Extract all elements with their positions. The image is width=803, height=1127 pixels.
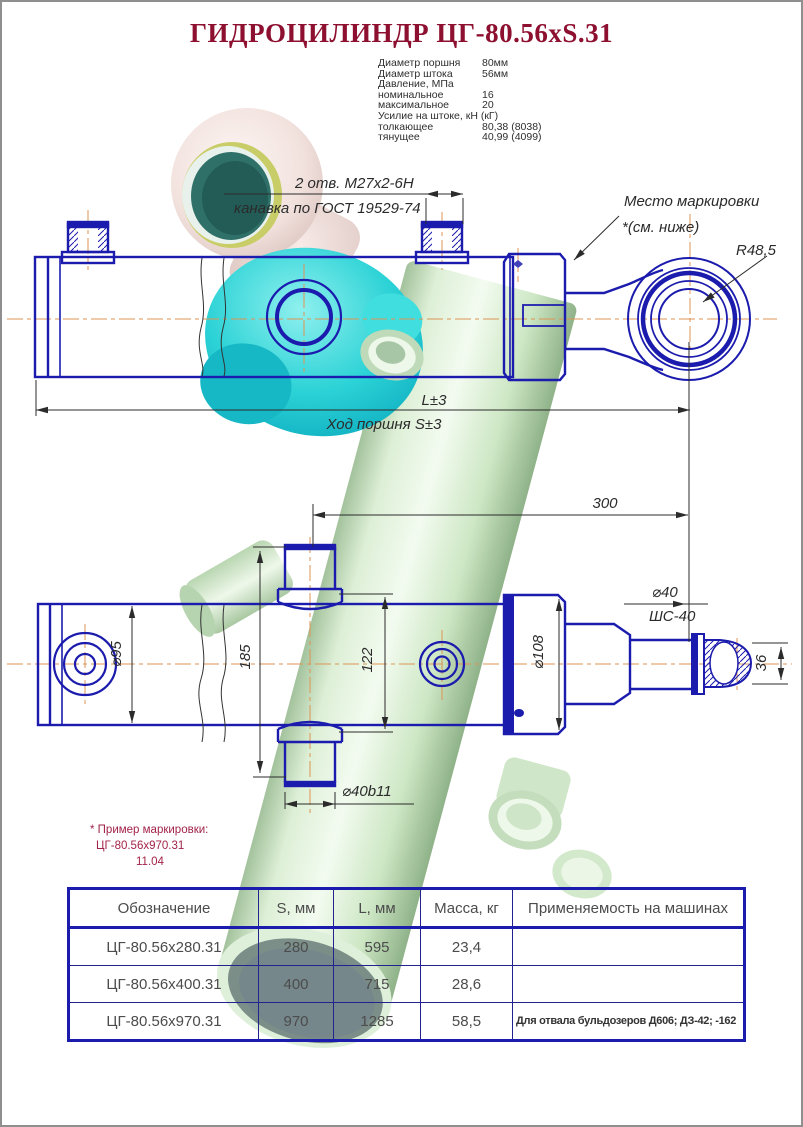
render-port-bottom1 [482, 754, 576, 857]
col-s-mm: S, мм [259, 889, 334, 928]
cell-application: Для отвала бульдозеров Д606; ДЗ-42; -162 [513, 1003, 745, 1041]
label-see-below: *(см. ниже) [622, 219, 699, 236]
label-300: 300 [592, 495, 618, 512]
marking-note-line3: 11.04 [136, 854, 208, 870]
marking-note-line2: ЦГ-80.56x970.31 [96, 838, 208, 854]
drawing-page: 2 отв. М27х2-6Н канавка по ГОСТ 19529-74… [0, 0, 803, 1127]
label-shs40: ШС-40 [649, 608, 696, 625]
page-title: ГИДРОЦИЛИНДР ЦГ-80.56xS.31 [2, 18, 801, 49]
col-l-mm: L, мм [334, 889, 421, 928]
label-dia95: ⌀95 [108, 640, 125, 666]
cell-s: 970 [259, 1003, 334, 1041]
label-36: 36 [753, 654, 770, 671]
table-row: ЦГ-80.56x400.31 400 715 28,6 [69, 966, 745, 1003]
label-stroke: Ход поршня S±3 [326, 416, 443, 433]
marking-note: * Пример маркировки: ЦГ-80.56x970.31 11.… [90, 822, 208, 870]
marking-point [513, 260, 523, 268]
label-holes: 2 отв. М27х2-6Н [294, 175, 414, 192]
col-application: Применяемость на машинах [513, 889, 745, 928]
spec-list: Диаметр поршня80мм Диаметр штока56мм Дав… [378, 58, 542, 143]
label-122: 122 [359, 647, 376, 673]
spec-row: Диаметр поршня80мм [378, 58, 542, 69]
table-row: ЦГ-80.56x970.31 970 1285 58,5 Для отвала… [69, 1003, 745, 1041]
cell-s: 280 [259, 928, 334, 966]
render-eye-bore-shadow [202, 161, 268, 235]
label-dia40: ⌀40 [652, 584, 678, 601]
col-mass: Масса, кг [421, 889, 513, 928]
spec-row: тянущее40,99 (4099) [378, 132, 542, 143]
label-dia40b11: ⌀40b11 [342, 783, 392, 800]
cell-l: 595 [334, 928, 421, 966]
label-185: 185 [237, 644, 254, 670]
cell-application [513, 928, 745, 966]
cell-mass: 23,4 [421, 928, 513, 966]
label-marking-place: Место маркировки [624, 193, 760, 210]
label-length: L±3 [422, 392, 448, 409]
cell-designation: ЦГ-80.56x400.31 [69, 966, 259, 1003]
table-header-row: Обозначение S, мм L, мм Масса, кг Примен… [69, 889, 745, 928]
col-designation: Обозначение [69, 889, 259, 928]
table-row: ЦГ-80.56x280.31 280 595 23,4 [69, 928, 745, 966]
variants-table: Обозначение S, мм L, мм Масса, кг Примен… [67, 887, 746, 1042]
cell-mass: 58,5 [421, 1003, 513, 1041]
label-dia108: ⌀108 [530, 634, 547, 669]
marking-note-line1: * Пример маркировки: [90, 822, 208, 838]
cell-mass: 28,6 [421, 966, 513, 1003]
cell-designation: ЦГ-80.56x970.31 [69, 1003, 259, 1041]
cell-s: 400 [259, 966, 334, 1003]
cell-application [513, 966, 745, 1003]
cell-l: 1285 [334, 1003, 421, 1041]
label-radius: R48,5 [736, 242, 777, 259]
cell-l: 715 [334, 966, 421, 1003]
label-groove: канавка по ГОСТ 19529-74 [234, 200, 421, 217]
cell-designation: ЦГ-80.56x280.31 [69, 928, 259, 966]
